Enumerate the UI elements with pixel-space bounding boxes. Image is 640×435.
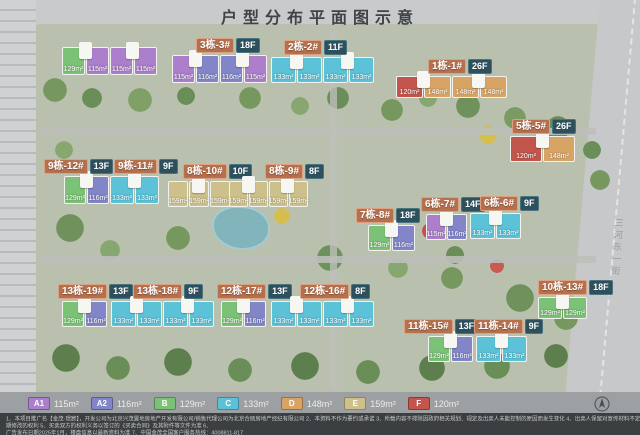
unit-cell: 133m² <box>111 301 136 327</box>
unit-cell: 129m² <box>221 301 243 327</box>
unit-cell: 159m² <box>168 181 188 207</box>
building-12-16: 12栋-16# 8F 133m² 133m² 133m² 133m² <box>271 301 374 327</box>
unit-cell: 129m² <box>563 297 587 319</box>
building-label: 5栋-5# <box>512 119 550 134</box>
unit-cell: 129m² <box>428 336 450 362</box>
unit-cells: 133m² 133m² <box>110 176 159 204</box>
building-label: 6栋-7# <box>421 197 459 212</box>
site-plan-map: 户型分布平面图示意 129m² 115m² 115m² 115m² 3栋-3# … <box>0 0 640 435</box>
unit-cell: 133m² <box>496 213 521 239</box>
page-title: 户型分布平面图示意 <box>0 4 640 28</box>
building-label: 12栋-16# <box>300 284 349 299</box>
building-9-11: 9栋-11# 9F 133m² 133m² <box>110 176 159 204</box>
compass-icon <box>594 396 610 417</box>
unit-cells: 129m² 115m² 115m² 115m² <box>62 47 157 75</box>
building-8-10: 8栋-10# 10F 159m² 159m² 159m² <box>168 181 230 207</box>
building-label: 8栋-9# <box>265 164 303 179</box>
unit-cell: 115m² <box>86 47 109 75</box>
unit-cell: 133m² <box>135 176 159 204</box>
floor-badge: 8F <box>305 164 324 179</box>
floor-badge: 26F <box>552 119 576 134</box>
floor-badge: 13F <box>268 284 292 299</box>
unit-cells: 129m² 116m² <box>64 176 109 204</box>
internal-path <box>40 256 596 263</box>
disclaimer-line2: 广告发布日期2025年1月，楼盘信息以最新资料为准 7、中国金茂全国客户服务热线… <box>6 430 640 435</box>
building-label: 11栋-15# <box>404 319 453 334</box>
unit-cell: 115m² <box>172 55 195 83</box>
unit-cell: 133m² <box>349 57 374 83</box>
unit-cell: 148m² <box>480 76 507 98</box>
unit-cell: 133m² <box>163 301 188 327</box>
unit-cell: 133m² <box>476 336 501 362</box>
floor-badge: 13F <box>90 159 114 174</box>
legend-swatch-d: D <box>281 397 303 410</box>
legend-item-d: D148m² <box>281 397 333 410</box>
building-5-5: 5栋-5# 26F 120m² 148m² <box>510 136 575 162</box>
unit-cell: 159m² <box>269 181 288 207</box>
legend-area: 148m² <box>307 399 333 409</box>
unit-cell: 148m² <box>424 76 451 98</box>
legend-area: 116m² <box>117 399 142 409</box>
legend-item-c: C133m² <box>217 397 269 410</box>
unit-cell: 133m² <box>271 301 296 327</box>
unit-cell: 133m² <box>502 336 527 362</box>
legend-area: 115m² <box>54 399 79 409</box>
unit-cell: 115m² <box>426 214 446 240</box>
unit-cell: 159m² <box>229 181 248 207</box>
legend-item-b: B129m² <box>154 397 206 410</box>
unit-cells: 133m² 133m² <box>470 213 521 239</box>
disclaimer: 1、本项目推广名【金茂·璟宸】，开发公司为北京兴茂置地房地产开发有限公司/销售代… <box>6 416 640 435</box>
unit-cells: 115m² 116m² 116m² 115m² <box>172 55 267 83</box>
unit-cells: 120m² 148m² <box>510 136 575 162</box>
building-label: 10栋-13# <box>538 280 587 295</box>
legend-swatch-b: B <box>154 397 176 410</box>
unit-cell: 148m² <box>543 136 575 162</box>
unit-cells: 129m² 116m² <box>428 336 473 362</box>
legend-swatch-c: C <box>217 397 239 410</box>
building-11-15: 11栋-15# 13F 129m² 116m² <box>428 336 473 362</box>
unit-cell: 116m² <box>451 336 473 362</box>
building-label: 11栋-14# <box>474 319 523 334</box>
building-label: 2栋-2# <box>284 40 322 55</box>
building-label: 12栋-17# <box>217 284 266 299</box>
building-9-12: 9栋-12# 13F 129m² 116m² <box>64 176 109 204</box>
floor-badge: 18F <box>236 38 260 53</box>
unit-cell: 133m² <box>323 57 348 83</box>
unit-cell: 133m² <box>297 301 322 327</box>
unit-cells: 133m² 133m² <box>476 336 527 362</box>
building-label: 7栋-8# <box>356 208 394 223</box>
unit-cells: 133m² 133m² 133m² 133m² <box>271 57 374 83</box>
legend: A1115m² A2116m² B129m² C133m² D148m² E15… <box>28 397 459 410</box>
unit-cell: 133m² <box>137 301 162 327</box>
legend-swatch-a1: A1 <box>28 397 50 410</box>
building-13-18: 13栋-18# 9F 133m² 133m² 133m² 133m² <box>111 301 214 327</box>
building-label: 6栋-6# <box>480 196 518 211</box>
unit-cell: 116m² <box>244 301 266 327</box>
legend-area: 129m² <box>180 399 206 409</box>
floor-badge: 8F <box>351 284 370 299</box>
unit-cell: 115m² <box>244 55 267 83</box>
unit-cells: 129m² 116m² <box>62 301 107 327</box>
legend-area: 120m² <box>434 399 460 409</box>
unit-cells: 129m² 129m² <box>538 297 587 319</box>
building-6-6: 6栋-6# 9F 133m² 133m² <box>470 213 521 239</box>
floor-badge: 26F <box>468 59 492 74</box>
unit-cell: 133m² <box>110 176 134 204</box>
building-11-14: 11栋-14# 9F 133m² 133m² <box>476 336 527 362</box>
unit-cell: 159m² <box>210 181 230 207</box>
unit-cell: 159m² <box>189 181 209 207</box>
unit-cell: 129m² <box>368 225 391 251</box>
unit-cells: 133m² 133m² 133m² 133m² <box>111 301 214 327</box>
building-label: 9栋-12# <box>44 159 88 174</box>
building-8-9: 8栋-9# 8F 159m² 159m² 159m² 159m² <box>229 181 308 207</box>
unit-cell: 133m² <box>470 213 495 239</box>
legend-item-a1: A1115m² <box>28 397 79 410</box>
unit-cells: 120m² 148m² 148m² 148m² <box>396 76 507 98</box>
building-2-2: 2栋-2# 11F 133m² 133m² 133m² 133m² <box>271 57 374 83</box>
building-1-1: 1栋-1# 26F 120m² 148m² 148m² 148m² <box>396 76 507 98</box>
unit-cell: 133m² <box>271 57 296 83</box>
unit-cell: 116m² <box>85 301 107 327</box>
floor-badge: 11F <box>324 40 347 55</box>
building-3-3: 3栋-3# 18F 115m² 116m² 116m² 115m² <box>172 55 267 83</box>
building-12-17: 12栋-17# 13F 129m² 116m² <box>221 301 266 327</box>
legend-area: 159m² <box>370 399 396 409</box>
building-label: 8栋-10# <box>183 164 227 179</box>
building-label: 9栋-11# <box>114 159 157 174</box>
unit-cell: 129m² <box>62 301 84 327</box>
unit-cells: 129m² 116m² <box>221 301 266 327</box>
legend-swatch-e: E <box>344 397 366 410</box>
unit-cells: 115m² 116m² <box>426 214 467 240</box>
unit-cell: 129m² <box>62 47 85 75</box>
unit-cells: 159m² 159m² 159m² <box>168 181 230 207</box>
building-label: 3栋-3# <box>196 38 234 53</box>
floor-badge: 9F <box>520 196 539 211</box>
unit-cell: 133m² <box>349 301 374 327</box>
floor-badge: 9F <box>184 284 203 299</box>
unit-cell: 120m² <box>510 136 542 162</box>
legend-area: 133m² <box>243 399 269 409</box>
unit-cells: 133m² 133m² 133m² 133m² <box>271 301 374 327</box>
unit-cell: 129m² <box>64 176 86 204</box>
floor-badge: 9F <box>525 319 544 334</box>
legend-item-a2: A2116m² <box>91 397 142 410</box>
unit-cell: 159m² <box>289 181 308 207</box>
legend-swatch-a2: A2 <box>91 397 113 410</box>
building-7-8: 7栋-8# 18F 129m² 116m² <box>368 225 415 251</box>
legend-swatch-f: F <box>408 397 430 410</box>
building-6-7: 6栋-7# 14F 115m² 116m² <box>426 214 467 240</box>
unit-cell: 116m² <box>196 55 219 83</box>
unit-cell: 133m² <box>189 301 214 327</box>
building-10-13: 10栋-13# 18F 129m² 129m² <box>538 297 587 319</box>
disclaimer-line1: 1、本项目推广名【金茂·璟宸】，开发公司为北京兴茂置地房地产开发有限公司/销售代… <box>6 416 640 430</box>
floor-badge: 18F <box>396 208 420 223</box>
unit-cells: 129m² 116m² <box>368 225 415 251</box>
unit-cell: 116m² <box>220 55 243 83</box>
building-13-19: 13栋-19# 13F 129m² 116m² <box>62 301 107 327</box>
legend-item-e: E159m² <box>344 397 396 410</box>
west-road <box>0 0 36 435</box>
building-label: 13栋-19# <box>58 284 107 299</box>
unit-cell: 116m² <box>87 176 109 204</box>
unit-cell: 116m² <box>447 214 467 240</box>
unit-cell: 115m² <box>134 47 157 75</box>
building-label: 1栋-1# <box>428 59 466 74</box>
unit-cell: 133m² <box>297 57 322 83</box>
unit-cells: 159m² 159m² 159m² 159m² <box>229 181 308 207</box>
unit-cell: 159m² <box>249 181 268 207</box>
legend-item-f: F120m² <box>408 397 460 410</box>
unit-cell: 116m² <box>392 225 415 251</box>
unit-cell: 133m² <box>323 301 348 327</box>
unit-cell: 148m² <box>452 76 479 98</box>
building-unlabeled: 129m² 115m² 115m² 115m² <box>62 47 157 75</box>
floor-badge: 18F <box>589 280 613 295</box>
unit-cell: 120m² <box>396 76 423 98</box>
unit-cell: 129m² <box>538 297 562 319</box>
unit-cell: 115m² <box>110 47 133 75</box>
internal-path <box>330 30 337 390</box>
floor-badge: 9F <box>159 159 178 174</box>
building-label: 13栋-18# <box>133 284 182 299</box>
